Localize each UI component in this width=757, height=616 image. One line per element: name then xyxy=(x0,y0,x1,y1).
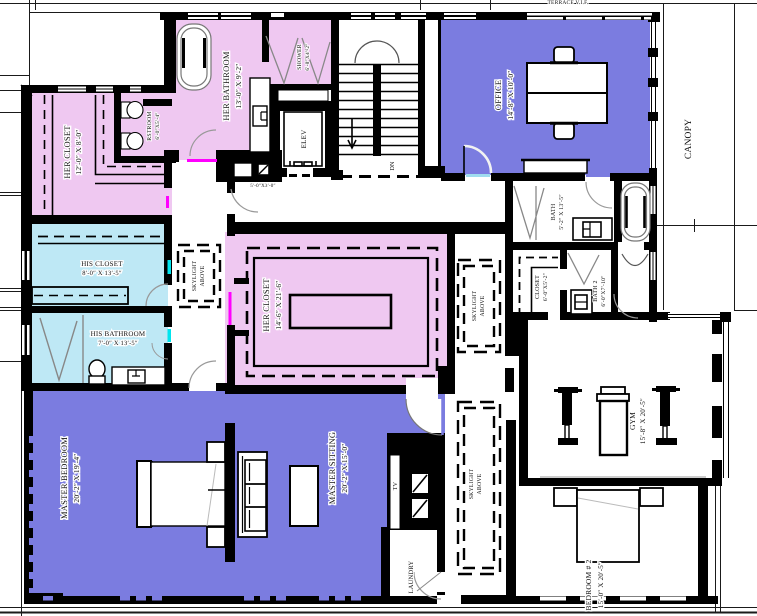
svg-text:OFFICE: OFFICE xyxy=(493,80,503,111)
svg-text:8′-0″ X 13′-5″: 8′-0″ X 13′-5″ xyxy=(82,270,122,277)
svg-text:ABOVE: ABOVE xyxy=(477,473,483,494)
svg-text:CANOPY: CANOPY xyxy=(684,119,694,159)
svg-text:HER BATHROOM: HER BATHROOM xyxy=(221,51,231,120)
svg-text:5′-2″ X 13′-5″: 5′-2″ X 13′-5″ xyxy=(559,194,565,230)
svg-text:RSTROOM: RSTROOM xyxy=(147,111,153,140)
svg-text:SKYLIGHT: SKYLIGHT xyxy=(469,468,475,499)
svg-text:6′-0″X5′-2″: 6′-0″X5′-2″ xyxy=(543,272,549,301)
svg-text:ABOVE: ABOVE xyxy=(480,295,486,316)
svg-text:6′-8″X4′-2″: 6′-8″X4′-2″ xyxy=(305,43,311,70)
svg-text:HIS CLOSET: HIS CLOSET xyxy=(81,260,123,268)
svg-text:DN: DN xyxy=(390,161,396,171)
svg-text:SHOWER: SHOWER xyxy=(297,44,303,70)
svg-text:BATH 2: BATH 2 xyxy=(593,280,599,301)
svg-text:6′-0″X7′-10″: 6′-0″X7′-10″ xyxy=(601,275,607,307)
svg-text:20′-2″ X 19′-4″: 20′-2″ X 19′-4″ xyxy=(72,453,81,502)
svg-text:HIS BATHROOM: HIS BATHROOM xyxy=(91,330,146,338)
svg-text:12′-0″ X 8′-0″: 12′-0″ X 8′-0″ xyxy=(74,129,83,174)
svg-text:GYM: GYM xyxy=(628,412,637,430)
svg-text:TV: TV xyxy=(393,481,399,490)
svg-text:ABOVE: ABOVE xyxy=(200,265,206,286)
svg-text:CLOSET: CLOSET xyxy=(535,275,541,299)
svg-text:6′-0″X5′-4″: 6′-0″X5′-4″ xyxy=(155,112,161,139)
svg-text:HER CLOSET: HER CLOSET xyxy=(62,125,72,179)
svg-text:5′-0″X3′-0″: 5′-0″X3′-0″ xyxy=(250,183,276,189)
svg-text:LAUNDRY: LAUNDRY xyxy=(408,560,415,593)
svg-text:7′-0″ X 13′-5″: 7′-0″ X 13′-5″ xyxy=(98,340,138,347)
svg-text:HER CLOSET: HER CLOSET xyxy=(261,278,271,332)
svg-text:SKYLIGHT: SKYLIGHT xyxy=(192,260,198,291)
svg-text:SKYLIGHT: SKYLIGHT xyxy=(472,290,478,321)
svg-text:MASTER BEDROOM: MASTER BEDROOM xyxy=(59,437,69,519)
svg-text:14′-8″ X 10′-0″: 14′-8″ X 10′-0″ xyxy=(506,70,515,119)
svg-text:ELEV: ELEV xyxy=(300,130,308,149)
svg-text:15′-8″ X 20′-5″: 15′-8″ X 20′-5″ xyxy=(639,398,647,444)
svg-text:14′-6″ X 21′-6″: 14′-6″ X 21′-6″ xyxy=(274,280,283,329)
svg-text:15′-0″ X 20′-5″: 15′-0″ X 20′-5″ xyxy=(597,562,605,608)
svg-text:BEDROOM # 2: BEDROOM # 2 xyxy=(584,559,593,610)
svg-text:TERRACE V.I.F.: TERRACE V.I.F. xyxy=(548,0,589,6)
svg-text:MASTER SITTING: MASTER SITTING xyxy=(327,432,337,504)
svg-text:13′-0″ X 9′-2″: 13′-0″ X 9′-2″ xyxy=(234,63,243,108)
svg-text:20′-2″ X 15′-0″: 20′-2″ X 15′-0″ xyxy=(340,443,349,492)
svg-text:BATH: BATH xyxy=(550,203,557,220)
